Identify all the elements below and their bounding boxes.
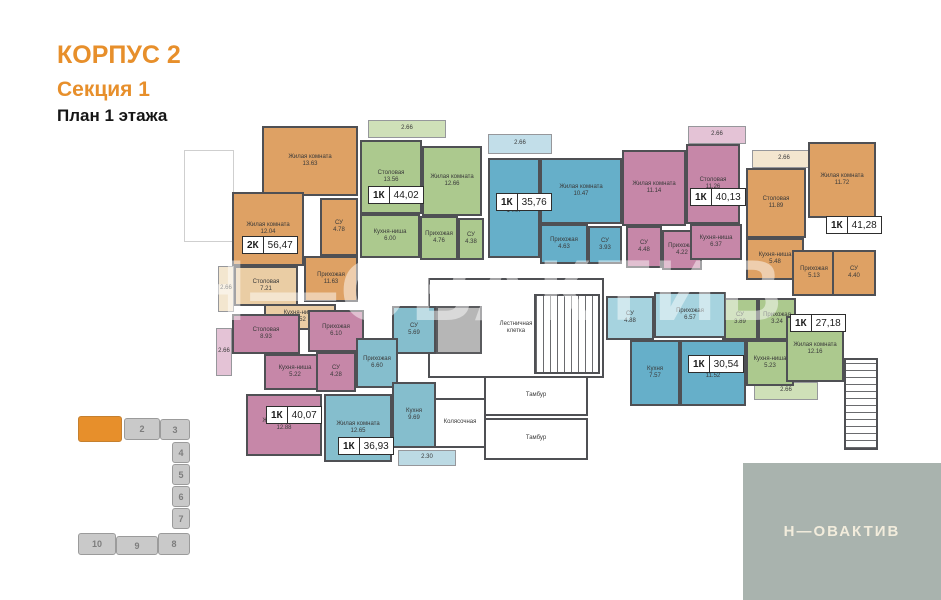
floor-plan-page: КОРПУС 2 Секция 1 План 1 этажа Н—ОВАКТИВ… bbox=[0, 0, 941, 600]
unit-1k-3054: 1К30,54 bbox=[688, 355, 744, 373]
minimap-section-5[interactable]: 5 bbox=[172, 464, 190, 485]
unit-area: 40,13 bbox=[711, 189, 745, 205]
unit-1k-3576: 1К35,76 bbox=[496, 193, 552, 211]
unit-area: 27,18 bbox=[811, 315, 845, 331]
unit-type: 1К bbox=[497, 194, 517, 210]
unit-type: 2К bbox=[243, 237, 263, 253]
unit-type: 1К bbox=[267, 407, 287, 423]
unit-1k-2718: 1К27,18 bbox=[790, 314, 846, 332]
unit-1k-4402: 1К44,02 bbox=[368, 186, 424, 204]
unit-type: 1К bbox=[339, 438, 359, 454]
unit-area: 36,93 bbox=[359, 438, 393, 454]
minimap-section-4[interactable]: 4 bbox=[172, 442, 190, 463]
unit-type: 1К bbox=[369, 187, 389, 203]
unit-type: 1К bbox=[689, 356, 709, 372]
minimap-section-8[interactable]: 8 bbox=[158, 533, 190, 555]
minimap-section-7[interactable]: 7 bbox=[172, 508, 190, 529]
unit-type: 1К bbox=[791, 315, 811, 331]
unit-area: 41,28 bbox=[847, 217, 881, 233]
minimap-section-active[interactable] bbox=[78, 416, 122, 442]
unit-area: 44,02 bbox=[389, 187, 423, 203]
developer-logo-plate: Н—ОВАКТИВ bbox=[743, 463, 941, 600]
unit-1k-4007: 1К40,07 bbox=[266, 406, 322, 424]
unit-1k-4128: 1К41,28 bbox=[826, 216, 882, 234]
developer-logo-text: Н—ОВАКТИВ bbox=[784, 523, 901, 540]
unit-area: 56,47 bbox=[263, 237, 297, 253]
unit-area: 30,54 bbox=[709, 356, 743, 372]
unit-area: 40,07 bbox=[287, 407, 321, 423]
minimap-section-3[interactable]: 3 bbox=[160, 419, 190, 440]
unit-type: 1К bbox=[691, 189, 711, 205]
minimap-section-10[interactable]: 10 bbox=[78, 533, 116, 555]
unit-type: 1К bbox=[827, 217, 847, 233]
unit-1k-3693: 1К36,93 bbox=[338, 437, 394, 455]
unit-area: 35,76 bbox=[517, 194, 551, 210]
minimap-section-2[interactable]: 2 bbox=[124, 418, 160, 440]
unit-2k-5647: 2К56,47 bbox=[242, 236, 298, 254]
minimap-section-6[interactable]: 6 bbox=[172, 486, 190, 507]
unit-1k-4013: 1К40,13 bbox=[690, 188, 746, 206]
minimap-section-9[interactable]: 9 bbox=[116, 536, 158, 555]
